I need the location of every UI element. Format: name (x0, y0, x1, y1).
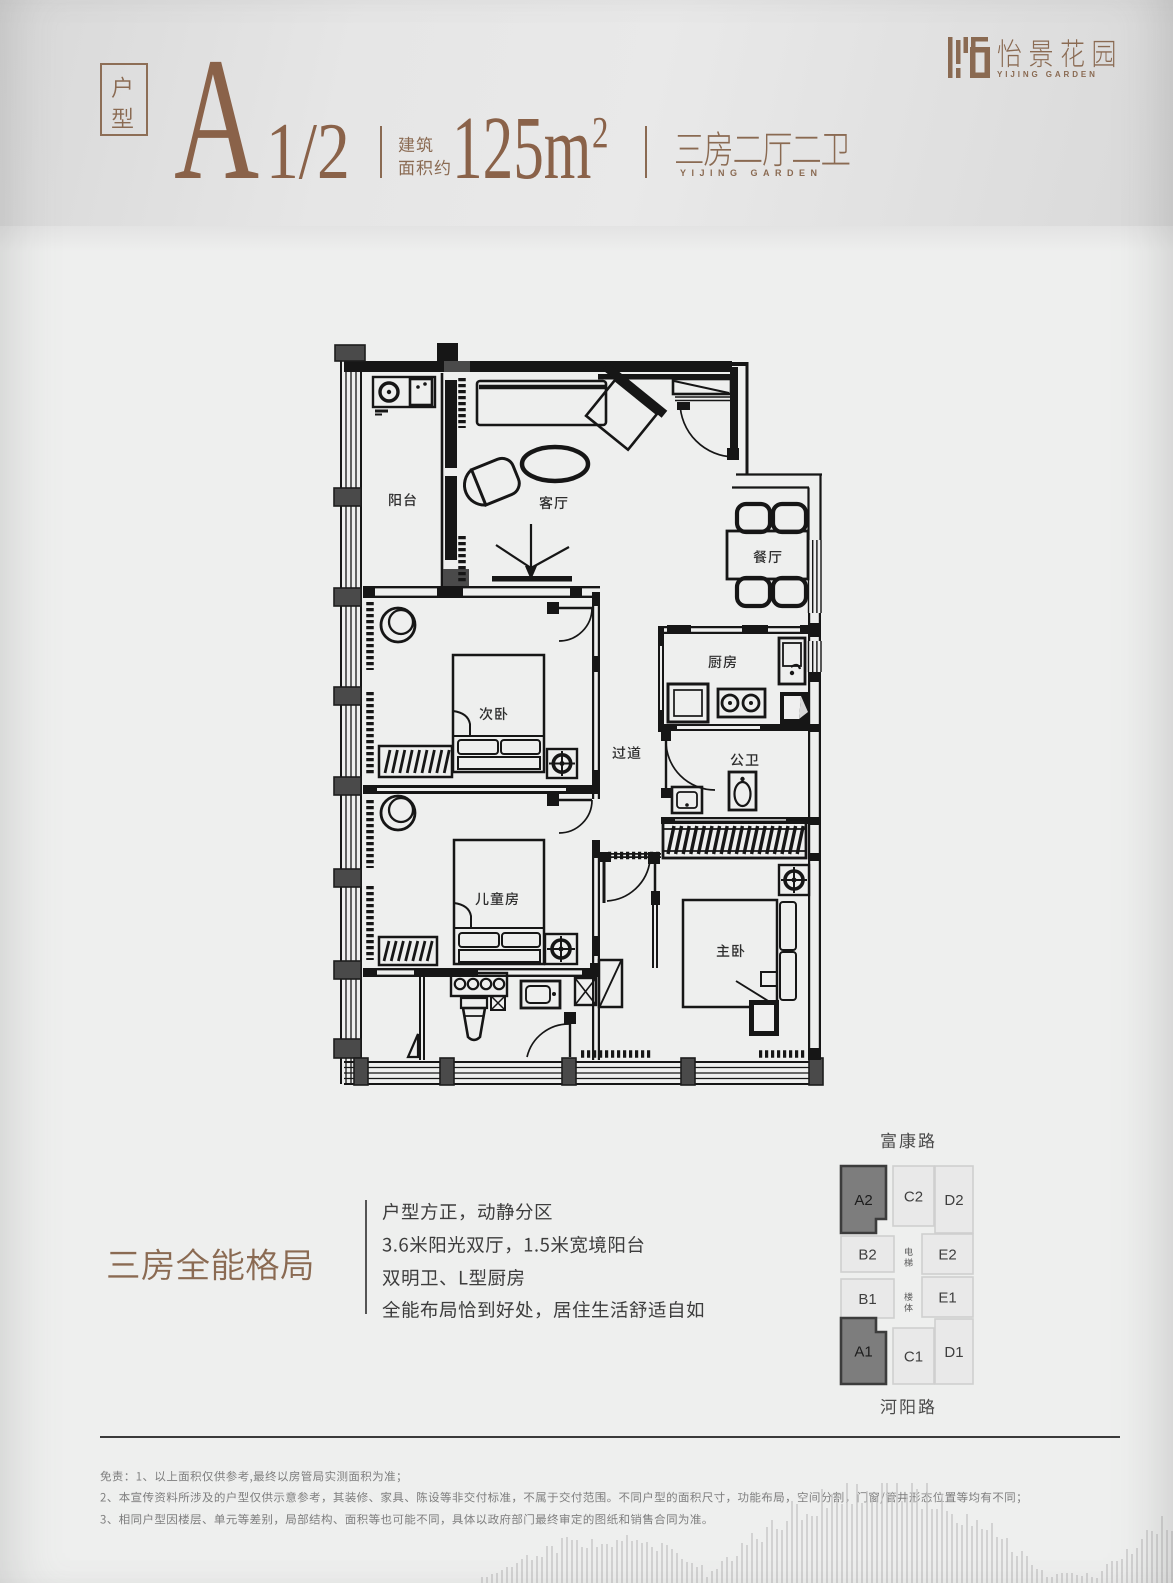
svg-text:D2: D2 (944, 1192, 963, 1209)
svg-text:B1: B1 (858, 1291, 876, 1308)
svg-text:A2: A2 (854, 1192, 872, 1209)
svg-text:D1: D1 (944, 1344, 963, 1361)
svg-text:E2: E2 (938, 1247, 956, 1264)
svg-text:B2: B2 (858, 1247, 876, 1264)
svg-text:C1: C1 (904, 1349, 923, 1366)
svg-text:C2: C2 (904, 1189, 923, 1206)
svg-text:E1: E1 (938, 1290, 956, 1307)
svg-text:A1: A1 (854, 1344, 872, 1361)
